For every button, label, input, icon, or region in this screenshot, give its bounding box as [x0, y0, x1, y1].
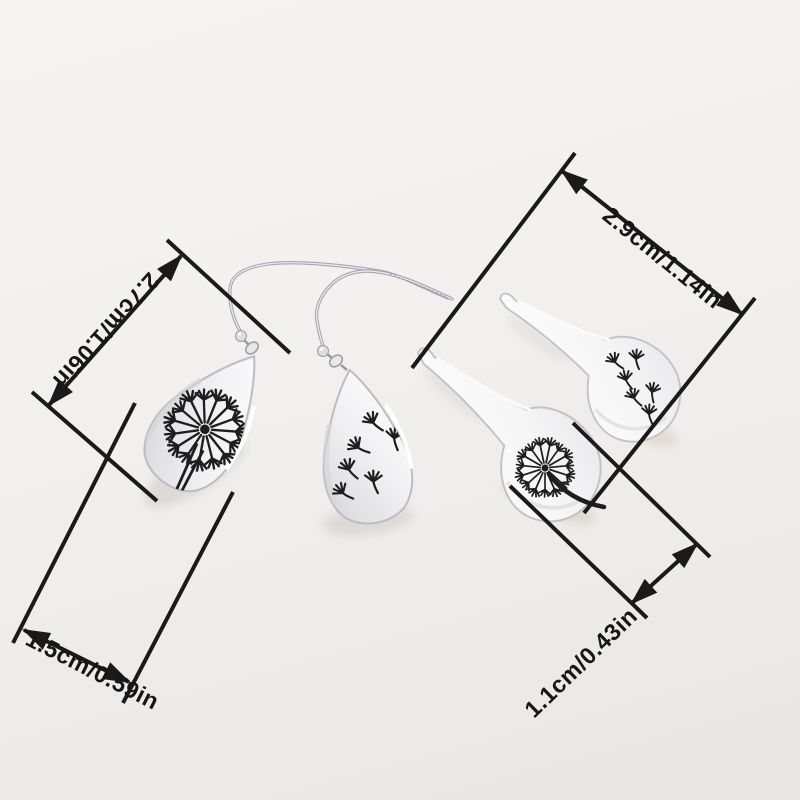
dimension-label-11cm: 1.1cm/0.43in — [519, 603, 642, 723]
bead-and-clasp — [236, 331, 261, 357]
extension-line — [167, 240, 290, 353]
extension-line — [123, 492, 233, 703]
ear-wire-hook — [317, 271, 452, 346]
product-photo: 2.9cm/1.14in 2.7cm/1.06in 1.5cm/0.59in 1… — [0, 0, 800, 800]
bead-and-clasp — [318, 346, 348, 371]
product-photo-canvas: 2.9cm/1.14in 2.7cm/1.06in 1.5cm/0.59in 1… — [0, 0, 800, 800]
dimension-label-27cm: 2.7cm/1.06in — [48, 268, 165, 394]
dimension-line — [632, 544, 697, 603]
dimension-label-29cm: 2.9cm/1.14in — [598, 202, 728, 314]
ear-wire-hook — [230, 263, 448, 331]
earring-front-middle — [307, 271, 452, 530]
extension-line — [13, 403, 135, 643]
